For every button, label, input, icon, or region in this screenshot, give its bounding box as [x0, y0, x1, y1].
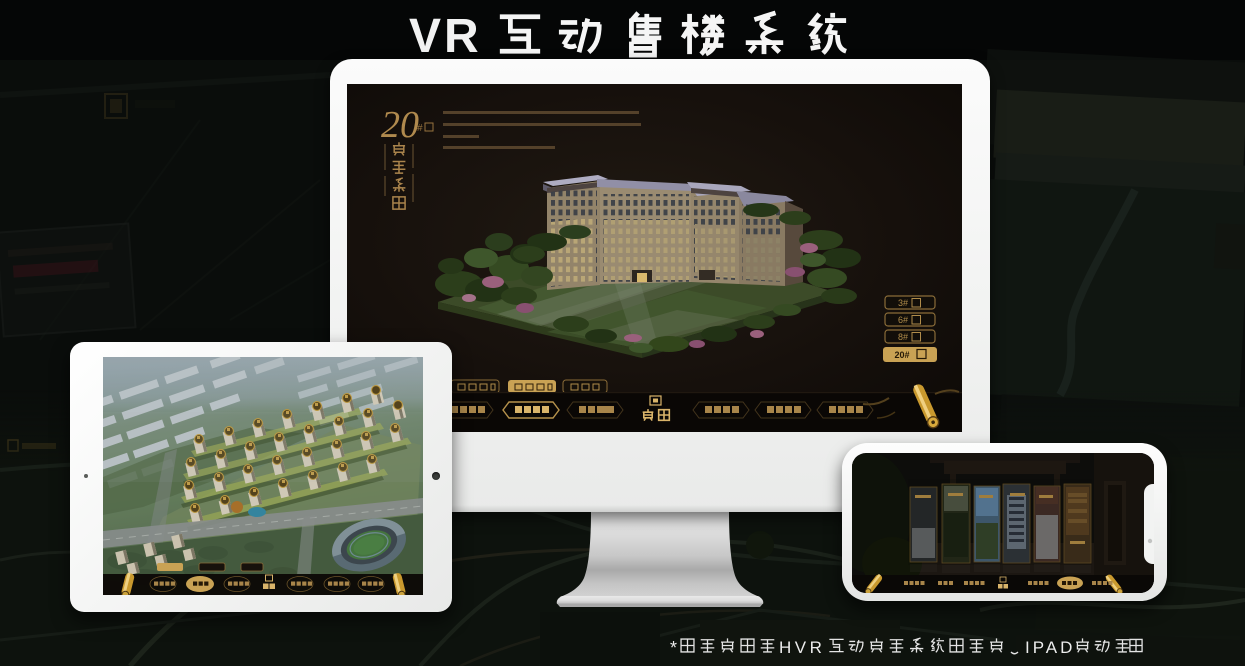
svg-text:3#: 3#	[898, 298, 908, 308]
svg-text:6#: 6#	[898, 315, 908, 325]
svg-text:VR: VR	[409, 10, 482, 60]
svg-text:8#: 8#	[898, 332, 908, 342]
svg-text:20: 20	[381, 104, 419, 146]
svg-text:IPAD: IPAD	[1025, 638, 1075, 657]
svg-text:#: #	[417, 123, 423, 134]
svg-text:*: *	[670, 638, 677, 658]
svg-text:20#: 20#	[894, 350, 909, 360]
svg-text:HVR: HVR	[779, 638, 825, 657]
